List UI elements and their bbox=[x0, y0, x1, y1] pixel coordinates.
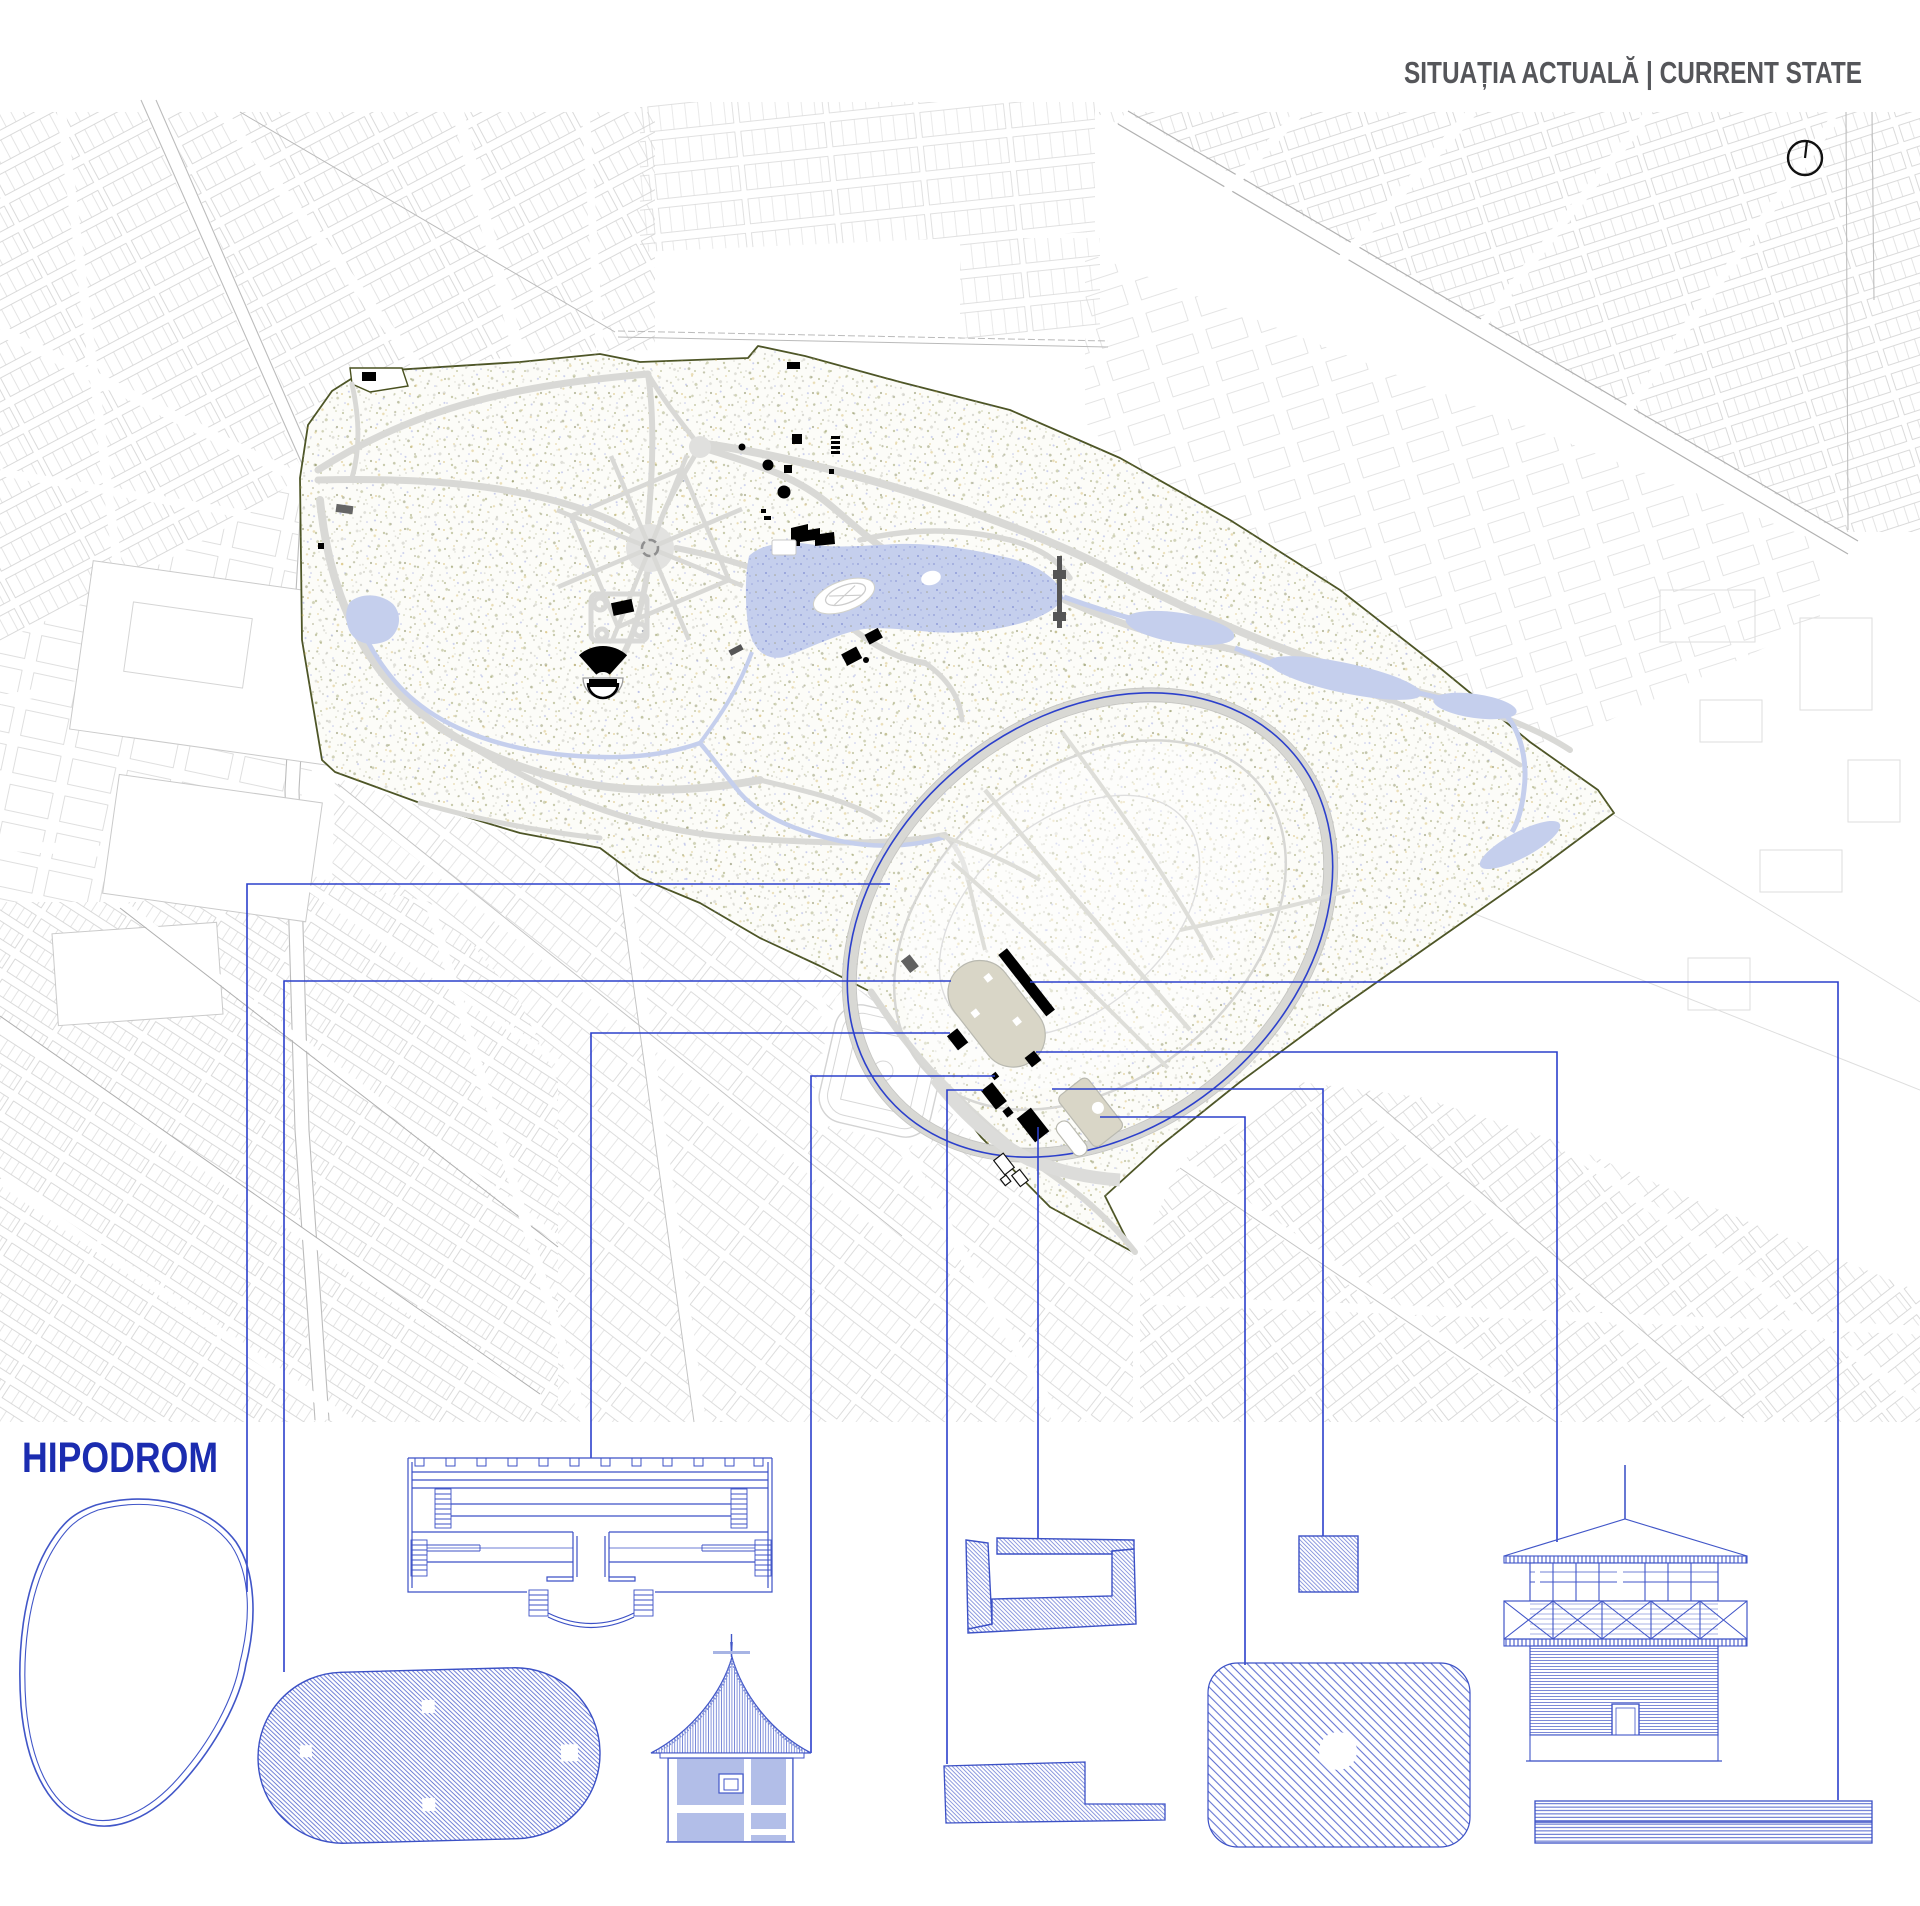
svg-text:HIPODROM: HIPODROM bbox=[22, 1434, 218, 1482]
svg-text:SITUAȚIA ACTUALĂ | CURRENT S: SITUAȚIA ACTUALĂ | CURRENT STATE bbox=[1404, 55, 1862, 90]
